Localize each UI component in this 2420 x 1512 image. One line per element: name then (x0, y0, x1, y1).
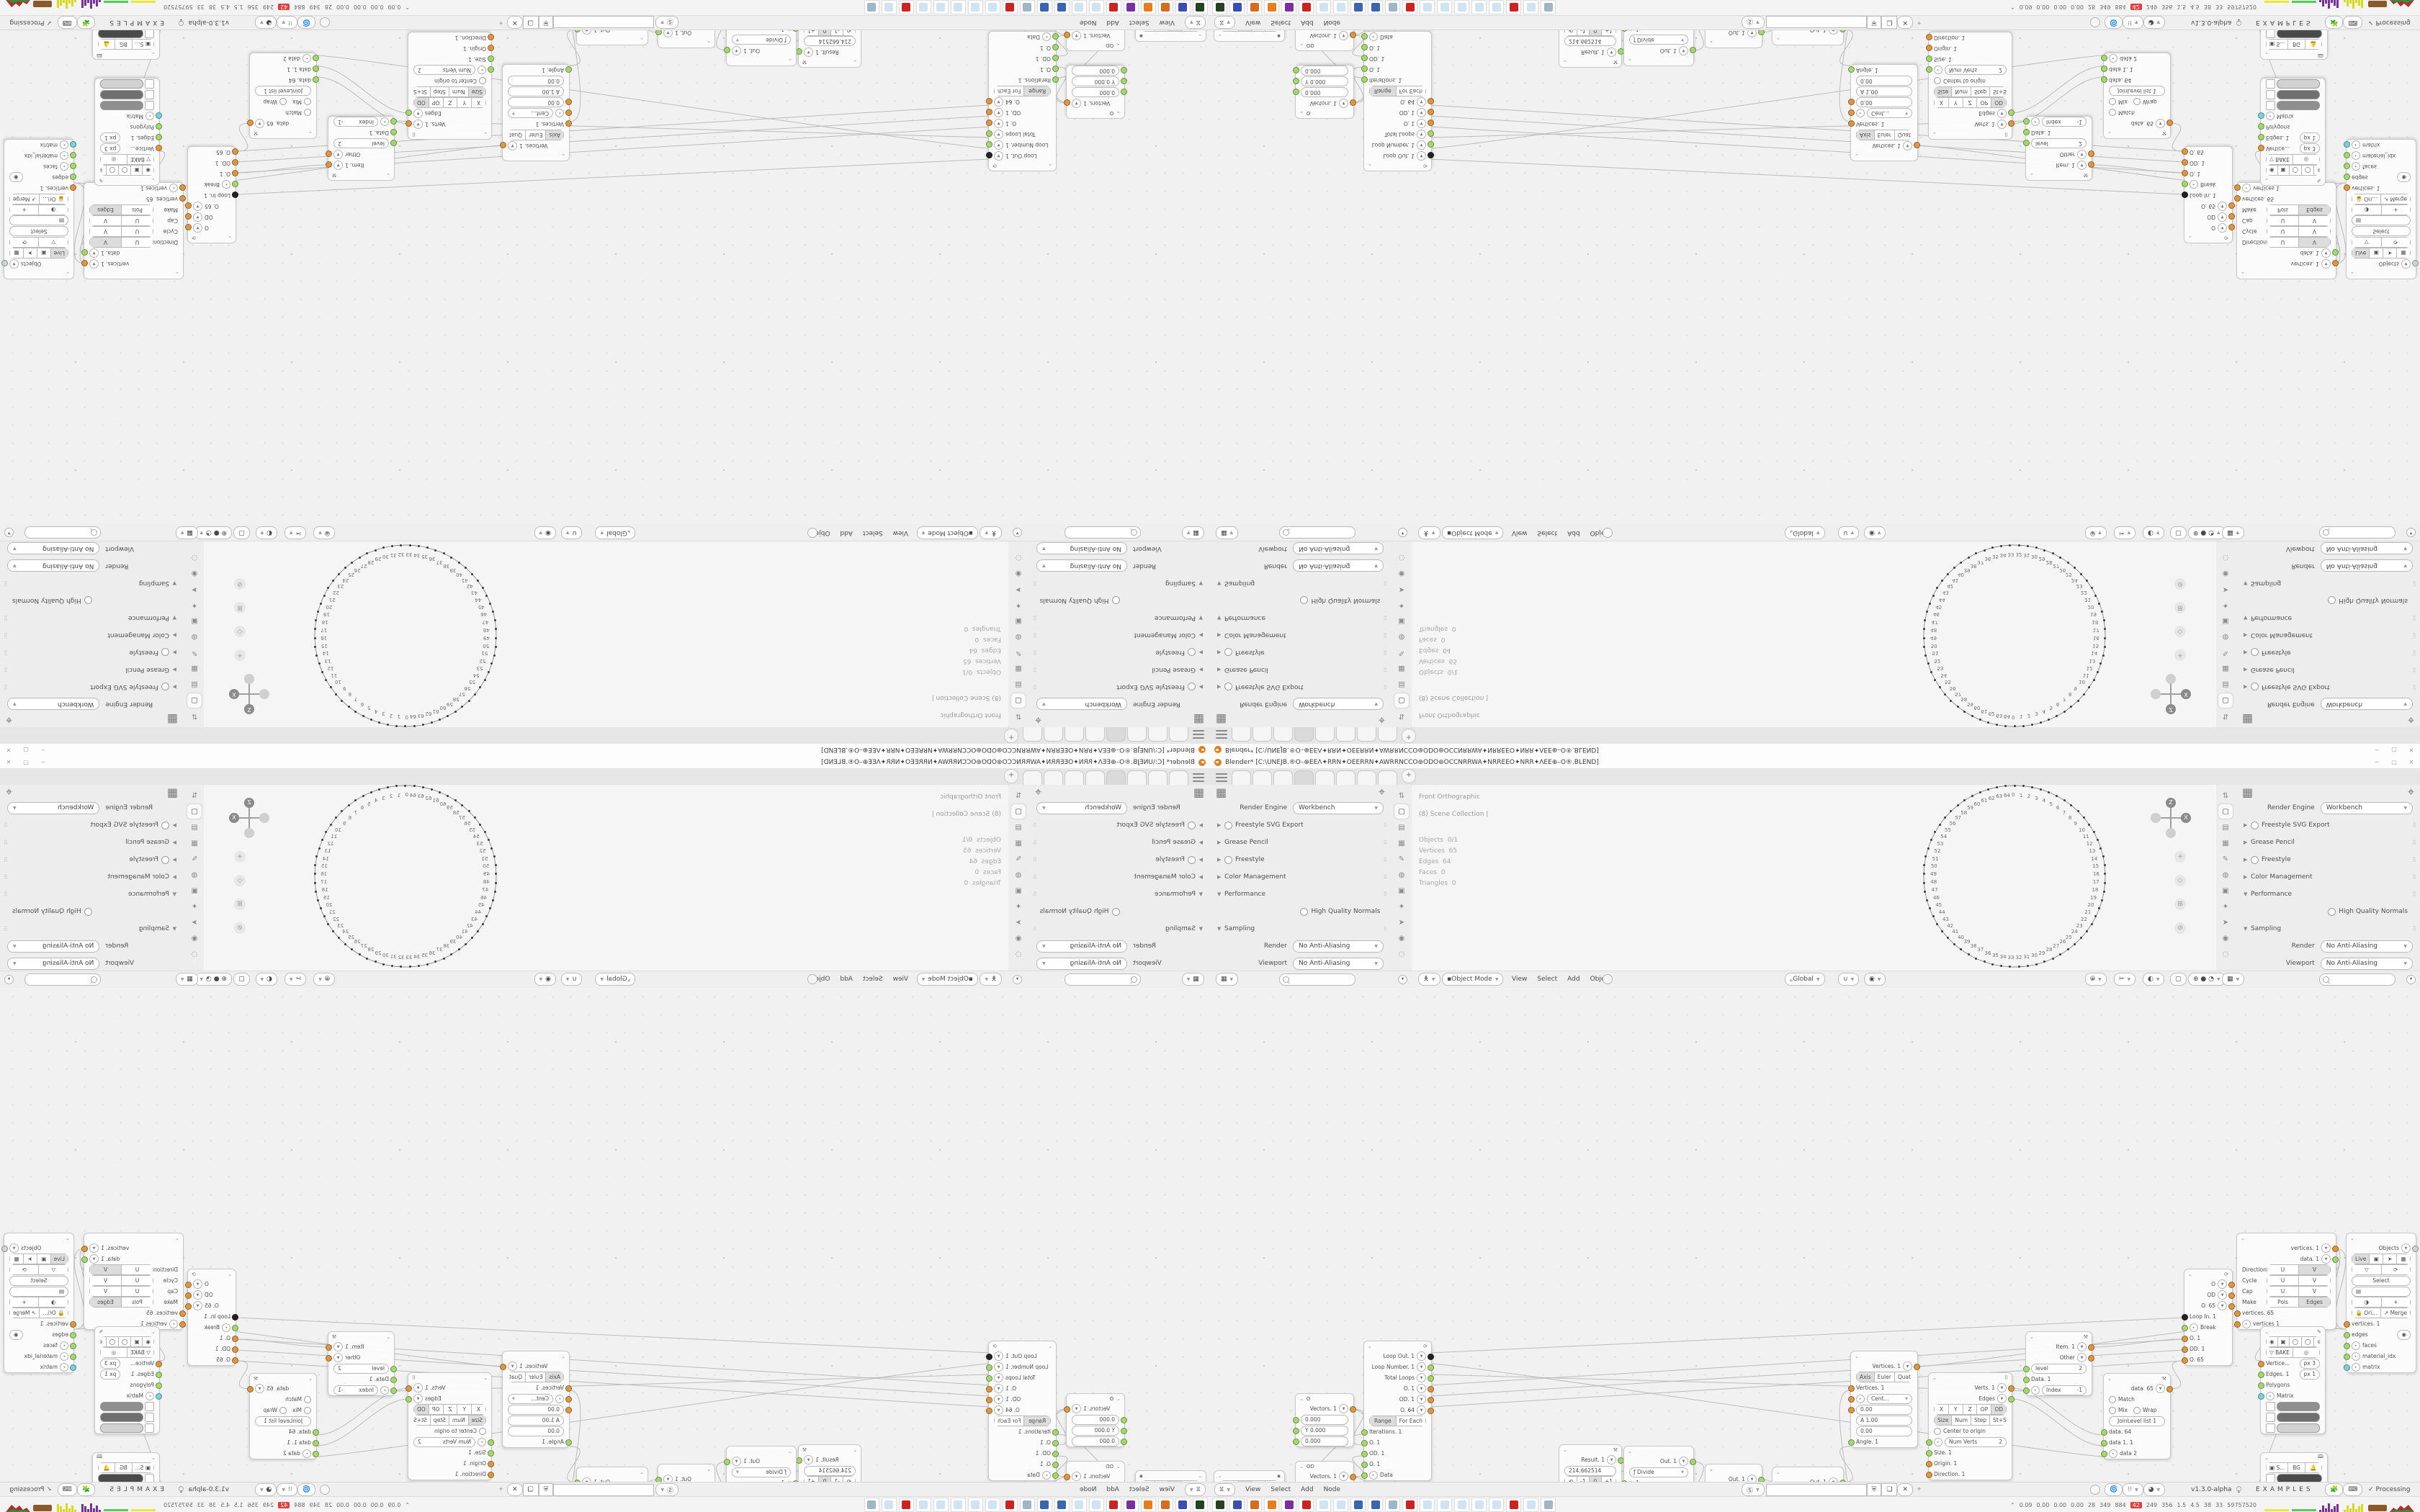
option-button[interactable]: ▽ BAKE (2266, 1347, 2293, 1358)
section-caret-icon[interactable]: ▼ (1217, 891, 1224, 897)
taskbar-app-disc[interactable] (1350, 1498, 1366, 1512)
input-socket[interactable] (2258, 1393, 2264, 1400)
node-header[interactable]: ⌄ (1773, 1467, 1843, 1477)
output-socket[interactable] (1428, 1408, 1434, 1414)
option-button[interactable]: Step (1971, 1415, 1989, 1426)
output-socket[interactable] (2088, 1344, 2094, 1351)
node-header[interactable]: ⌄ (1851, 1351, 1917, 1361)
properties-tab-4[interactable]: ✎ (2218, 852, 2233, 866)
option-button[interactable]: 🔔 (2305, 1462, 2322, 1473)
field-select-viewport[interactable]: No Anti-Aliasing▼ (2321, 958, 2413, 970)
enum-select[interactable]: ƒ Divide▼ (1629, 1467, 1688, 1477)
taskbar-app-disc[interactable] (1368, 1498, 1383, 1512)
input-socket[interactable] (1361, 1451, 1368, 1457)
input-socket[interactable] (1848, 1385, 1855, 1392)
input-socket[interactable] (2344, 1343, 2350, 1349)
collapse-caret-icon[interactable]: ⌄ (1368, 1344, 1372, 1349)
taskbar-app-notes[interactable] (1420, 1498, 1435, 1512)
collapse-caret-icon[interactable]: ⌄ (1855, 1354, 1859, 1359)
node-header[interactable]: ⌄⠿ (1929, 1373, 2012, 1382)
output-socket[interactable] (2088, 1355, 2094, 1362)
output-socket[interactable] (1350, 1406, 1356, 1413)
option-button[interactable]: ◯ (2289, 1336, 2301, 1347)
color-swatch[interactable] (2277, 1423, 2320, 1433)
fake-user-shield-button[interactable]: ⛨ (1867, 1483, 1882, 1496)
properties-tab-7[interactable]: ✦ (2218, 899, 2233, 914)
proportional-edit-dropdown[interactable]: ◉▼ (1864, 973, 1886, 986)
value-field[interactable]: 0.000 (1301, 1436, 1348, 1446)
swatch-option-icon[interactable] (2266, 1474, 2275, 1482)
collapse-caret-icon[interactable]: ⌄ (1299, 1464, 1304, 1470)
taskbar-app-calculator[interactable] (1541, 1498, 1556, 1512)
gizmo-x-axis[interactable]: X (2181, 813, 2191, 823)
checkbox[interactable] (1934, 1428, 1941, 1435)
option-button[interactable]: Edges (2298, 1297, 2331, 1308)
workspace-tab-6[interactable] (1336, 770, 1355, 785)
collapse-caret-icon[interactable]: ⌄ (2107, 1376, 2112, 1382)
output-socket[interactable] (2332, 1256, 2339, 1263)
color-swatch[interactable] (2277, 1402, 2320, 1411)
section-caret-icon[interactable]: ▶ (2244, 840, 2251, 845)
swatch-option-icon[interactable] (2266, 1413, 2275, 1422)
option-button[interactable]: U (2267, 1286, 2298, 1297)
minimize-button[interactable]: ─ (2368, 756, 2385, 768)
properties-tab-6[interactable]: ▣ (2218, 883, 2233, 898)
option-button[interactable]: ▣ (2277, 1336, 2289, 1347)
properties-options-dropdown[interactable]: ▼ (1398, 975, 1407, 984)
input-socket[interactable] (2182, 1336, 2188, 1342)
option-button[interactable]: ▣ S... (2266, 1462, 2287, 1473)
option-button[interactable]: ◯ (2301, 1336, 2313, 1347)
input-socket[interactable] (1361, 1440, 1368, 1446)
taskbar-app-notes[interactable] (1471, 1498, 1487, 1512)
section-checkbox[interactable] (1224, 856, 1232, 864)
input-socket[interactable] (2344, 1332, 2350, 1338)
taskbar-app-settings-red[interactable] (1402, 1498, 1417, 1512)
section-caret-icon[interactable]: ▶ (1217, 822, 1224, 828)
section-checkbox[interactable] (2251, 822, 2259, 829)
pin-icon[interactable]: ⌖ (1917, 1486, 1921, 1493)
input-socket[interactable] (2344, 1354, 2350, 1360)
node-tree-name-input[interactable] (1766, 1484, 1867, 1496)
input-socket[interactable] (2234, 1321, 2241, 1328)
option-button[interactable]: Euler (1874, 1372, 1894, 1382)
output-socket[interactable] (1690, 1459, 1696, 1465)
option-button[interactable]: 0 (1589, 1476, 1601, 1482)
option-button[interactable]: V (2298, 1286, 2331, 1297)
number-field[interactable]: level2 (2031, 1364, 2087, 1374)
grid-ortho-button[interactable]: ⊘ (2174, 922, 2186, 934)
taskbar-app-notes[interactable] (1523, 1498, 1538, 1512)
properties-tab-8[interactable]: ➤ (2218, 915, 2233, 930)
pan-hand-button[interactable]: ◇ (2174, 875, 2186, 886)
menu-view[interactable]: View (1512, 976, 1527, 983)
action-button[interactable]: Select (2352, 1276, 2411, 1286)
node-menu-add[interactable]: Add (1301, 1486, 1313, 1493)
option-button[interactable]: OD (1991, 1404, 2007, 1415)
collapse-caret-icon[interactable]: ⌄ (1776, 1470, 1780, 1475)
output-socket[interactable] (2228, 1282, 2235, 1288)
input-socket[interactable] (2344, 1321, 2350, 1328)
option-button[interactable]: Quat (1894, 1372, 1912, 1382)
workspace-tab-7[interactable] (1357, 770, 1376, 785)
number-field[interactable]: Index-1 (2042, 1385, 2087, 1395)
input-socket[interactable] (1926, 1461, 1932, 1467)
section-caret-icon[interactable]: ▼ (1217, 926, 1224, 932)
input-socket[interactable] (2258, 1361, 2264, 1367)
collapse-caret-icon[interactable]: ⌄ (1299, 1396, 1304, 1402)
output-socket[interactable] (1428, 1354, 1434, 1360)
swatch-option-icon[interactable] (2266, 1423, 2275, 1433)
section-caret-icon[interactable]: ▶ (1217, 874, 1224, 880)
properties-tab-2[interactable]: ▤ (1394, 820, 1409, 834)
number-node-64[interactable]: ⌄▪floatint⚙▾an int64 (1214, 1470, 1285, 1482)
input-socket[interactable] (2258, 1382, 2264, 1389)
section-caret-icon[interactable]: ▶ (2244, 874, 2251, 880)
node-header[interactable]: ⌄O (1296, 1394, 1353, 1403)
node-menu-view[interactable]: View (1245, 1486, 1260, 1493)
properties-tab-10[interactable]: ◌ (2218, 947, 2233, 961)
input-socket[interactable] (1926, 1450, 1932, 1457)
checkbox[interactable] (1300, 908, 1308, 916)
option-button[interactable]: U (2267, 1275, 2298, 1286)
workspace-tab-1[interactable] (1232, 770, 1251, 785)
input-socket[interactable] (2101, 1451, 2107, 1457)
node-menu-node[interactable]: Node (1324, 1486, 1341, 1493)
workspace-tab-2[interactable] (1252, 770, 1272, 785)
number-node-result[interactable]: ⌄⚒Result. 1▼214.662514⟲-10+1 (1559, 1444, 1622, 1482)
workspace-tab-8[interactable] (1378, 770, 1397, 785)
value-field[interactable]: 0.00 (1856, 1426, 1912, 1436)
section-checkbox[interactable] (2251, 856, 2259, 864)
section-caret-icon[interactable]: ▼ (2244, 926, 2251, 932)
input-socket[interactable] (1361, 1472, 1368, 1479)
input-socket[interactable] (2182, 1325, 2188, 1331)
option-button[interactable]: Y (1948, 1404, 1963, 1415)
checkbox[interactable] (2109, 1396, 2116, 1403)
properties-tab-0[interactable]: ⇅ (1394, 788, 1409, 803)
collapse-caret-icon[interactable]: ⌄ (2264, 1329, 2269, 1335)
node-header[interactable]: ⌄⚒ (2104, 1374, 2170, 1383)
value-field[interactable]: 0.00 (1856, 1405, 1912, 1415)
viewport-3d[interactable]: Front Orthographic (8) Scene Collection … (1412, 785, 2216, 971)
shading-wireframe-button[interactable]: ▢ (2170, 973, 2187, 986)
gizmo-x-neg[interactable] (2151, 813, 2161, 823)
option-button[interactable]: Z (1963, 1404, 1977, 1415)
taskbar-app-notes[interactable] (1489, 1498, 1504, 1512)
option-button[interactable]: St+Si (1989, 1415, 2007, 1426)
properties-b-editor-type-button[interactable]: ▦▼ (2222, 973, 2244, 986)
value-field[interactable]: A 1.00 (1856, 1416, 1912, 1426)
workspace-tab-3[interactable] (1273, 770, 1293, 785)
checkbox[interactable] (2328, 908, 2336, 916)
color-swatch[interactable] (2277, 1474, 2322, 1482)
properties-tab-5[interactable]: ◍ (2218, 868, 2233, 882)
input-socket[interactable] (2344, 1364, 2350, 1371)
layout-dropdown[interactable]: ⁝⁝▼ (2123, 1483, 2143, 1496)
properties-tab-0[interactable]: ⇅ (2218, 788, 2233, 803)
option-button[interactable]: -1 (1577, 1476, 1589, 1482)
menu-select[interactable]: Select (1537, 976, 1557, 983)
section-caret-icon[interactable]: ▶ (2244, 857, 2251, 863)
properties-editor-type-button[interactable]: ▦▼ (1216, 973, 1238, 986)
gizmo-z-axis[interactable]: Z (2166, 798, 2176, 808)
collapse-caret-icon[interactable]: ⌄ (1628, 1449, 1632, 1454)
checkbox[interactable] (2109, 1407, 2116, 1414)
option-button[interactable]: ➤ (2383, 1254, 2396, 1264)
option-button[interactable]: Range (1369, 1416, 1396, 1426)
node-header[interactable]: ⌄OD (1296, 1462, 1353, 1471)
line-node[interactable]: ⌄⠿Verts. 1▼Edges▼XYZOPODSizeNumStepSt+Si… (1928, 1372, 2012, 1480)
properties-tab-10[interactable]: ◌ (1394, 947, 1409, 961)
properties-tab-3[interactable]: ▦ (2218, 836, 2233, 850)
console-button[interactable]: ⌨ (2343, 1483, 2362, 1496)
node-header[interactable]: ⌄ (1706, 1464, 1762, 1474)
option-button[interactable]: For Each (1396, 1416, 1426, 1426)
properties-b-search-input[interactable] (2319, 973, 2396, 986)
collapse-caret-icon[interactable]: ⌄ (2241, 1236, 2245, 1241)
option-button[interactable]: V (2298, 1275, 2331, 1286)
option-button[interactable]: ◉ (2266, 1336, 2277, 1347)
properties-tab-2[interactable]: ▤ (2218, 820, 2233, 834)
section-caret-icon[interactable]: ▶ (1217, 840, 1224, 845)
input-socket[interactable] (2258, 1372, 2264, 1378)
node-header[interactable]: ⌄🕮 (2261, 1453, 2327, 1462)
camera-view-button[interactable]: ⊞ (2174, 899, 2186, 910)
math-node-power[interactable]: ⌄Out. 1▼ƒ Power 2▼x. 1y. 1 (1705, 1464, 1762, 1482)
section-caret-icon[interactable]: ▶ (1217, 857, 1224, 863)
collapse-caret-icon[interactable]: ⌄ (1563, 1447, 1567, 1453)
list-item-node[interactable]: ⌄⚒Item. 1▼Other▼level2Data. 1▸Index-1 (2025, 1331, 2092, 1396)
properties-tab-6[interactable]: ▣ (1394, 883, 1409, 898)
option-button[interactable]: ↗ Merge (2380, 1308, 2411, 1318)
properties-tab-1[interactable]: ▢ (1394, 804, 1409, 819)
node-editor-canvas[interactable]: ⌄▪floatint⚙▾an int64⌄OVectors. 1▼0.000Y … (1210, 988, 2420, 1482)
option-button[interactable]: ▽ (2352, 1264, 2381, 1275)
option-button[interactable]: +1 (1601, 1476, 1616, 1482)
properties-tab-7[interactable]: ✦ (1394, 899, 1409, 914)
option-button[interactable]: OP (1976, 1404, 1991, 1415)
value-field[interactable]: ▤ (2352, 1287, 2411, 1297)
active-tool-ring[interactable] (1603, 974, 1613, 984)
taskbar-app-firefox[interactable] (1247, 1498, 1262, 1512)
input-socket[interactable] (1848, 1439, 1855, 1446)
number-field[interactable]: Num Verts2 (1945, 1437, 2007, 1447)
node-header[interactable]: ⌄ (2347, 1233, 2416, 1243)
taskbar-app-settings-red[interactable] (1299, 1498, 1314, 1512)
option-button[interactable]: Size (1934, 1415, 1951, 1426)
action-button[interactable]: JoinLevel list 1 (2109, 1416, 2165, 1426)
option-button[interactable]: Axis (1856, 1372, 1874, 1382)
viewport-editor-type-button[interactable]: 🯅▼ (1418, 973, 1440, 986)
color-swatch[interactable] (2277, 1413, 2320, 1422)
properties-tab-4[interactable]: ✎ (1394, 852, 1409, 866)
value-field[interactable]: 0.000 (1301, 1415, 1348, 1425)
option-button[interactable]: ⊘ (2313, 1336, 2320, 1347)
output-socket[interactable] (2166, 1386, 2173, 1392)
taskbar-app-calculator[interactable] (1385, 1498, 1400, 1512)
option-button[interactable]: 🔒 Ori... (2352, 1308, 2380, 1318)
output-socket[interactable] (2332, 1246, 2339, 1252)
option-button[interactable]: ◎ (2293, 1347, 2320, 1358)
field-select-render[interactable]: No Anti-Aliasing▼ (2321, 940, 2413, 953)
taskbar-app-settings-red[interactable] (1506, 1498, 1521, 1512)
taskbar-app-terminal[interactable] (1212, 1498, 1227, 1512)
option-button[interactable]: + (2381, 1297, 2411, 1308)
snap-dropdown[interactable]: ∪▼ (1838, 973, 1859, 986)
output-socket[interactable] (2008, 1396, 2015, 1403)
option-button[interactable]: U (2267, 1264, 2298, 1275)
checkbox[interactable] (2133, 1407, 2141, 1414)
properties-tab-1[interactable]: ▢ (2218, 804, 2233, 819)
input-socket[interactable] (1361, 1429, 1368, 1436)
output-socket[interactable] (1428, 1364, 1434, 1371)
viewer-bmesh-node[interactable]: ⌄Objects▼Live▣➤▦▽⟳Select▤◑+🔒 Ori...↗ Mer… (2346, 1233, 2416, 1373)
node-menu-select[interactable]: Select (1270, 1486, 1291, 1493)
taskbar-app-notes[interactable] (1437, 1498, 1452, 1512)
properties-tab-8[interactable]: ➤ (1394, 915, 1409, 930)
properties-tab-3[interactable]: ▦ (1394, 836, 1409, 850)
option-button[interactable]: ⟳ (2381, 1264, 2411, 1275)
option-button[interactable]: ◑ (2352, 1297, 2381, 1308)
input-socket[interactable] (1926, 1472, 1932, 1478)
output-socket[interactable] (1428, 1375, 1434, 1382)
draft-dropdown[interactable]: ◕▼ (2143, 1483, 2165, 1496)
taskbar-app-notes[interactable] (1454, 1498, 1469, 1512)
option-button[interactable]: ⟲ (1564, 1476, 1577, 1482)
input-socket[interactable] (2182, 1357, 2188, 1364)
properties-b-options-dropdown[interactable]: ▼ (2406, 975, 2416, 984)
math-node-divide[interactable]: ⌄Out. 1▼ƒ Divide▼x. 1y. 1 (1623, 1446, 1694, 1482)
collapse-caret-icon[interactable]: ⌄ (2264, 1455, 2269, 1461)
loop-out-node[interactable]: ⌄⟳O▼OD▼O. 65▼Loop In. 1▸BreakO. 1OD. 1O.… (2184, 1269, 2233, 1366)
list-join-node[interactable]: ⌄⚒data. 65▼MatchMixWrapJoinLevel list 1d… (2103, 1373, 2171, 1459)
collapse-caret-icon[interactable]: ⌄ (1932, 1375, 1937, 1381)
output-socket[interactable] (2228, 1303, 2235, 1310)
processing-checkbox[interactable]: ✓ Processing (2368, 1484, 2411, 1495)
viewer-index-node[interactable]: ⌄🕮▣ S...BG🔔verts. 1edges. 1▸faces▸matrix… (2260, 1452, 2328, 1482)
collapse-caret-icon[interactable]: ⌄ (1709, 1467, 1713, 1472)
option-button[interactable]: Num (1951, 1415, 1971, 1426)
input-socket[interactable] (2101, 1440, 2107, 1446)
section-caret-icon[interactable]: ▶ (2244, 822, 2251, 828)
update-cycle-button[interactable]: 🌀 (2105, 1483, 2123, 1496)
vector-node-od[interactable]: ⌄ODVectors. 1▼1.000Y 0.0000.000 (1295, 1461, 1354, 1482)
loop-in-node[interactable]: ⌄⟳Loop Out. 1▼Loop Number. 1▼Total Loops… (1363, 1341, 1432, 1481)
option-button[interactable]: ▦ (2396, 1254, 2411, 1264)
math-node-multiply[interactable]: ⌄Out. 1▼ƒ Multiply▼x. 1y 1 (1772, 1467, 1844, 1482)
field-select-render[interactable]: No Anti-Aliasing▼ (1293, 940, 1384, 953)
option-button[interactable]: Pols (2267, 1297, 2298, 1308)
input-socket[interactable] (2182, 1314, 2188, 1320)
enum-select[interactable]: Cent...▼ (1867, 1394, 1912, 1404)
node-header[interactable]: ⌄▪ (1214, 1471, 1284, 1480)
output-socket[interactable] (2008, 1385, 2015, 1392)
output-socket[interactable] (1350, 1474, 1356, 1480)
node-header[interactable]: ⌄ (2237, 1233, 2336, 1243)
node-header[interactable]: ⌄⚒ (1559, 1445, 1621, 1454)
gizmo-z-neg[interactable] (2166, 828, 2176, 838)
maximize-button[interactable]: ▢ (2385, 756, 2403, 768)
value-field[interactable]: Y 0.000 (1301, 1426, 1348, 1436)
option-button[interactable]: V (2298, 1264, 2331, 1275)
navigation-gizmo[interactable]: Z X (2151, 798, 2191, 838)
transform-orientation-dropdown[interactable]: ⌞ Global▼ (1785, 973, 1825, 986)
collapse-caret-icon[interactable]: ⌄ (2350, 1236, 2354, 1241)
option-button[interactable]: BG (2287, 1462, 2304, 1473)
collapse-caret-icon[interactable]: ⌄ (2030, 1334, 2034, 1340)
output-socket[interactable] (1428, 1386, 1434, 1392)
taskbar-app-notes[interactable] (1316, 1498, 1331, 1512)
value-field[interactable]: 214.662514 (1564, 1466, 1616, 1476)
gizmo-toggle-button[interactable]: 🞋▼ (2085, 973, 2107, 986)
option-button[interactable]: Live (2352, 1254, 2369, 1264)
properties-tab-9[interactable]: ◉ (1394, 931, 1409, 945)
workspace-tab-5[interactable] (1315, 770, 1335, 785)
workspace-tab-4[interactable] (1294, 770, 1314, 785)
rotate-node[interactable]: ⌄Vertices. 1▼AxisEulerQuatVertices. 1▸Ce… (1850, 1351, 1918, 1448)
input-socket[interactable] (2101, 1429, 2107, 1436)
taskbar-app-blender[interactable] (1264, 1498, 1279, 1512)
pin-icon[interactable]: ⌖ (2408, 785, 2414, 799)
properties-search-input[interactable] (1279, 973, 1355, 986)
shading-mode-buttons[interactable]: ⊕ ● ◔▼ (2188, 973, 2226, 986)
input-socket[interactable] (2234, 1310, 2241, 1317)
node-header[interactable]: ⌄⟳ (1364, 1341, 1431, 1351)
collapse-caret-icon[interactable]: ⌄ (1218, 1473, 1222, 1479)
vector-node-o[interactable]: ⌄OVectors. 1▼0.000Y 0.0000.000 (1295, 1393, 1354, 1447)
option-button[interactable]: ▣ (2369, 1254, 2383, 1264)
section-checkbox[interactable] (1224, 822, 1232, 829)
collapse-caret-icon[interactable]: ⌄ (2188, 1272, 2192, 1277)
node-header[interactable]: ⌄✎ (2261, 1327, 2325, 1336)
node-header[interactable]: ⌄⟳ (2184, 1269, 2232, 1279)
input-socket[interactable] (2023, 1377, 2030, 1383)
overlays-toggle-button[interactable]: ✂▼ (2114, 973, 2136, 986)
zoom-button[interactable]: + (2174, 851, 2186, 863)
output-socket[interactable] (1428, 1397, 1434, 1403)
taskbar-app-save[interactable] (1229, 1498, 1245, 1512)
xray-toggle-button[interactable]: ◐▼ (2143, 973, 2164, 986)
taskbar-app-media[interactable] (1281, 1498, 1296, 1512)
uv-connection-node[interactable]: ⌄vertices. 1▼data. 1▼DirectionUVCycleUVC… (2236, 1233, 2336, 1330)
swatch-option-icon[interactable] (2266, 1402, 2275, 1411)
node-header[interactable]: ⌄⚒ (2026, 1332, 2092, 1341)
add-workspace-button[interactable]: + (1402, 769, 1416, 783)
node-editor-type-button[interactable]: ⧖▼ (1214, 1483, 1235, 1496)
node-tree-browse-button[interactable]: Ⓢ▼ (1742, 1483, 1765, 1496)
examples-menu[interactable]: EXAMPLES (2256, 1484, 2313, 1495)
new-copy-button[interactable]: ❏ (1881, 1483, 1897, 1496)
section-caret-icon[interactable]: ▼ (2244, 891, 2251, 897)
pin-icon[interactable]: ⌖ (1379, 785, 1385, 799)
viewer-draw-node[interactable]: ⌄✎◉▣◯◯⊘▽ BAKE◎Vertice...px 3Edges. 1px 1… (2260, 1326, 2326, 1434)
close-button[interactable]: ✕ (2403, 756, 2420, 768)
extra-tools-button[interactable]: 🧩 (2325, 1483, 2343, 1496)
field-select-render-engine[interactable]: Workbench▼ (1293, 802, 1384, 814)
field-select-render-engine[interactable]: Workbench▼ (2321, 802, 2413, 814)
output-socket[interactable] (1914, 1364, 1920, 1370)
field-select-viewport[interactable]: No Anti-Aliasing▼ (1293, 958, 1384, 970)
option-button[interactable]: X (1934, 1404, 1948, 1415)
menu-add[interactable]: Add (1567, 976, 1579, 983)
input-socket[interactable] (1361, 1462, 1368, 1468)
taskbar-app-notes[interactable] (1333, 1498, 1348, 1512)
menu-hamburger-icon[interactable] (1216, 773, 1227, 782)
output-socket[interactable] (1758, 1477, 1765, 1482)
output-socket[interactable] (2412, 1246, 2419, 1252)
properties-tab-5[interactable]: ◍ (1394, 868, 1409, 882)
